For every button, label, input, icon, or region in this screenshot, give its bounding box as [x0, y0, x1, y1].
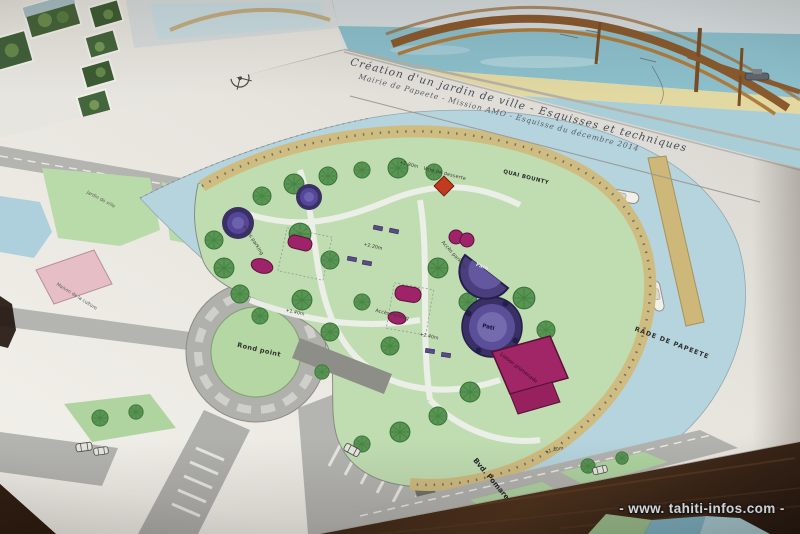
- tree-icon: [253, 187, 271, 205]
- tree-icon: [321, 251, 339, 269]
- purple-pavilion: [296, 184, 322, 210]
- tree-icon: [92, 410, 108, 426]
- tree-icon: [390, 422, 410, 442]
- tree-icon: [129, 405, 143, 419]
- tree-icon: [321, 323, 339, 341]
- tree-icon: [429, 407, 447, 425]
- photo-of-site-plans: Création d'un jardin de ville - Esquisse…: [0, 0, 800, 534]
- tree-icon: [214, 258, 234, 278]
- tree-icon: [231, 285, 249, 303]
- tree-icon: [616, 452, 629, 465]
- tree-icon: [381, 337, 399, 355]
- tree-icon: [205, 231, 223, 249]
- tree-icon: [460, 382, 480, 402]
- tree-icon: [537, 321, 555, 339]
- tree-icon: [428, 258, 448, 278]
- car-icon: [76, 442, 93, 452]
- watermark: - www. tahiti-infos.com -: [602, 501, 800, 516]
- tree-icon: [292, 290, 312, 310]
- tree-icon: [354, 162, 370, 178]
- tree-icon: [319, 167, 337, 185]
- tree-icon: [315, 365, 329, 379]
- tree-icon: [252, 308, 268, 324]
- tree-icon: [354, 294, 370, 310]
- tree-icon: [513, 287, 535, 309]
- car-icon: [93, 446, 108, 455]
